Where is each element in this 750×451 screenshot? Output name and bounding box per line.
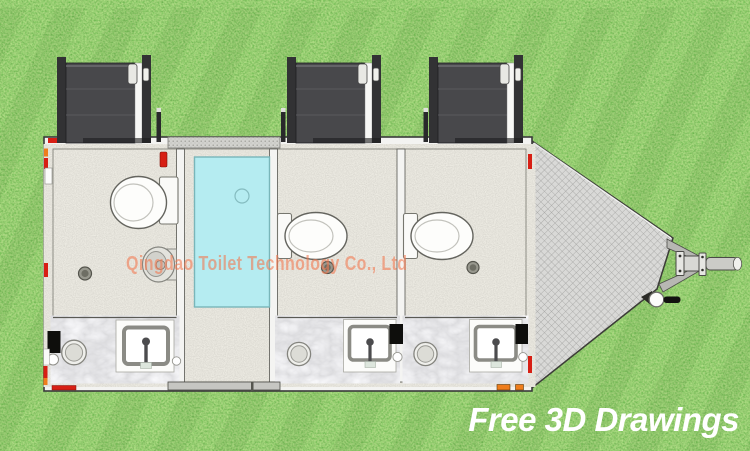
partition-wall-3 bbox=[397, 149, 405, 382]
entry-step-mat bbox=[168, 137, 280, 148]
marker-light-orange-1 bbox=[497, 385, 510, 391]
washbasin-2 bbox=[287, 342, 310, 365]
toilet-1 bbox=[111, 177, 179, 229]
dispenser-3 bbox=[516, 324, 529, 344]
door-2 bbox=[287, 55, 381, 143]
floor-drain-1 bbox=[79, 267, 92, 280]
door-stay-2 bbox=[281, 111, 286, 142]
door-3 bbox=[429, 55, 523, 143]
shower-tray bbox=[195, 157, 270, 307]
trailer-body bbox=[44, 137, 533, 391]
door-stay-3 bbox=[424, 111, 429, 142]
counter-sink-2 bbox=[344, 320, 397, 373]
counter-sink-3 bbox=[470, 320, 523, 373]
urinal bbox=[143, 247, 177, 282]
toilet-2 bbox=[278, 213, 348, 260]
counter-sink-1 bbox=[116, 320, 174, 372]
tagline-text: Free 3D Drawings bbox=[468, 401, 739, 439]
knob-3 bbox=[519, 353, 528, 362]
trailer-doors bbox=[57, 55, 523, 148]
dispenser-2 bbox=[390, 324, 404, 344]
floor-plan-graphic bbox=[0, 0, 750, 451]
marker-light-orange-2 bbox=[516, 385, 524, 391]
washbasin-1 bbox=[62, 340, 87, 365]
wall-hatch bbox=[45, 168, 52, 184]
shower-corridor bbox=[195, 157, 270, 307]
knob-2 bbox=[393, 352, 402, 361]
door-1 bbox=[57, 55, 151, 143]
top-white-bar bbox=[0, 0, 750, 8]
knob-1b bbox=[172, 357, 180, 365]
product-image: Qingdao Toilet Technology Co., Ltd Free … bbox=[0, 0, 750, 451]
floor-drain-2 bbox=[322, 262, 334, 274]
toilet-3 bbox=[404, 213, 474, 260]
partition-wall-2 bbox=[270, 149, 278, 382]
coat-hook bbox=[160, 152, 167, 167]
jockey-handle bbox=[664, 297, 681, 304]
marker-light-red bbox=[52, 386, 76, 391]
door-stay-1 bbox=[157, 111, 162, 142]
floor-drain-3 bbox=[467, 262, 479, 274]
washbasin-3 bbox=[414, 342, 437, 365]
